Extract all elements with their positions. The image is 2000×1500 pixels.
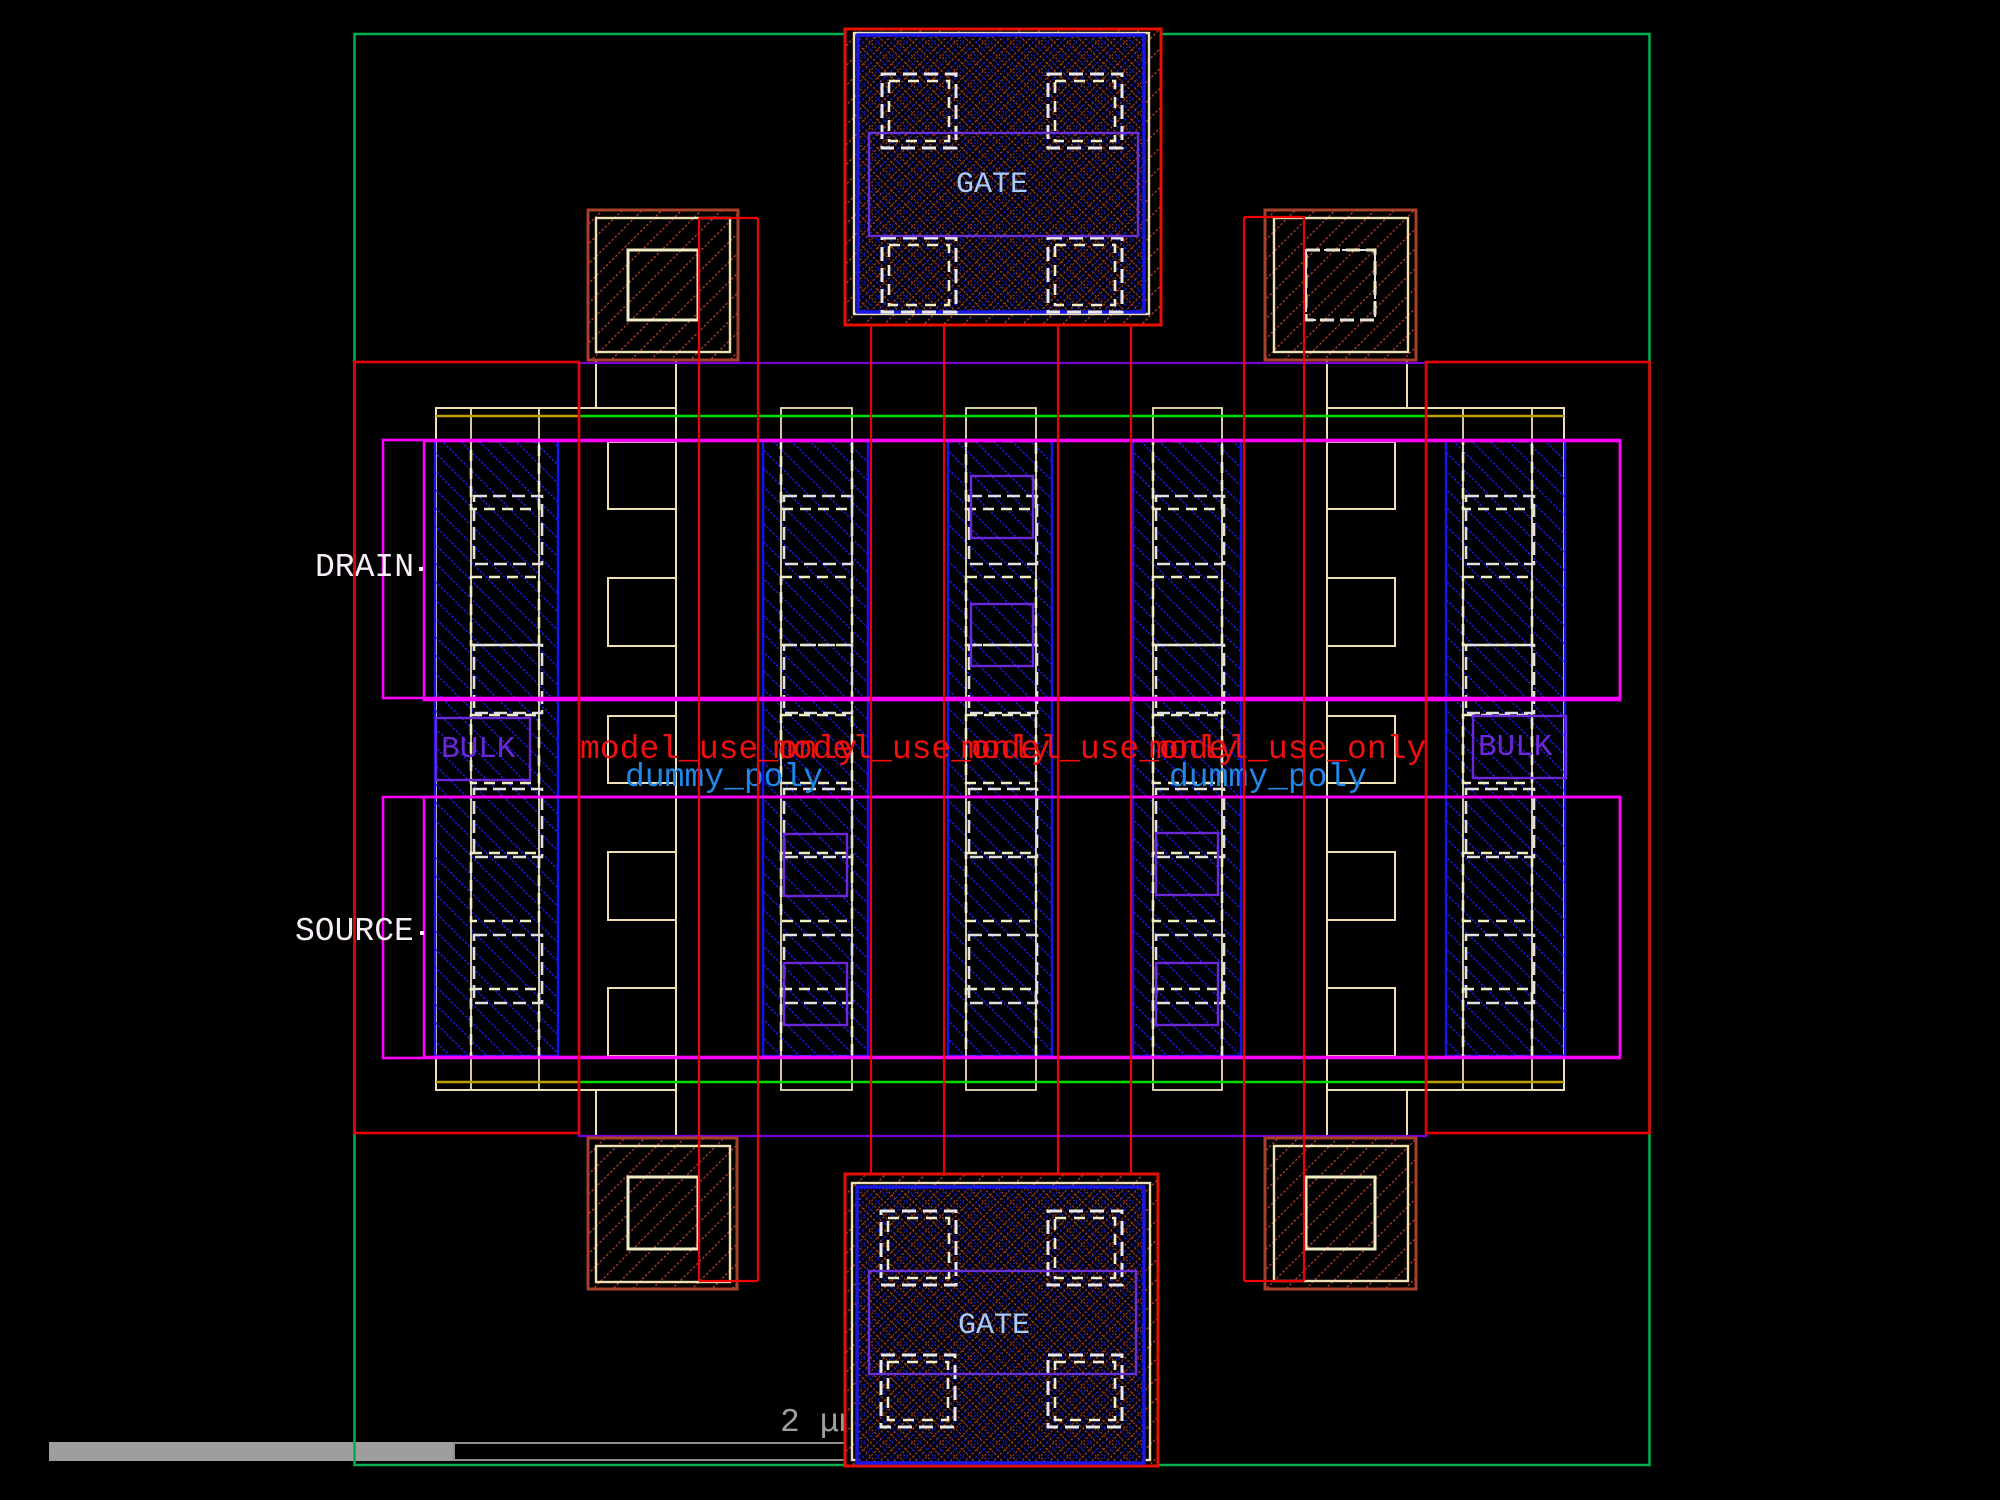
- svg-text:GATE: GATE: [958, 1309, 1030, 1343]
- svg-text:BULK: BULK: [441, 732, 516, 767]
- svg-text:DRAIN: DRAIN: [315, 549, 414, 586]
- svg-text:dummy_poly: dummy_poly: [1169, 759, 1367, 796]
- svg-text:GATE: GATE: [956, 168, 1028, 202]
- svg-text:dummy_poly: dummy_poly: [625, 759, 823, 796]
- svg-text:BULK: BULK: [1478, 730, 1553, 765]
